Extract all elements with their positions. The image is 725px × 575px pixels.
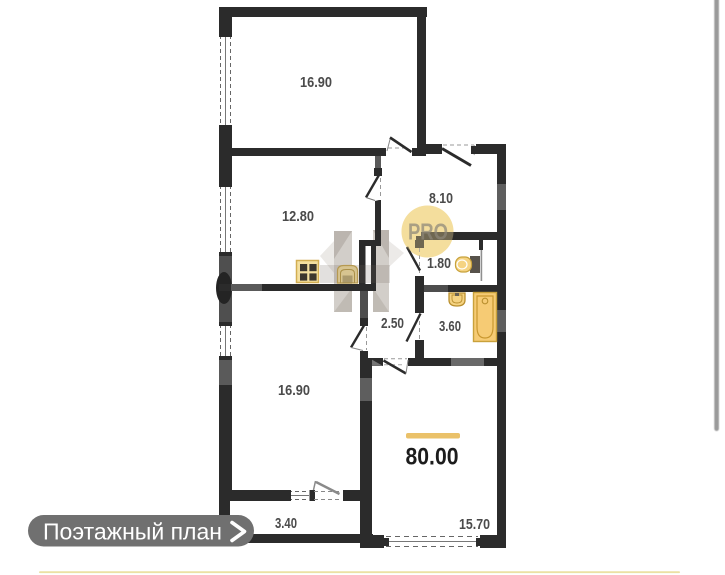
svg-text:3.40: 3.40 [275, 515, 297, 532]
svg-text:15.70: 15.70 [459, 516, 490, 533]
svg-text:Поэтажный план: Поэтажный план [43, 519, 222, 545]
svg-text:16.90: 16.90 [300, 74, 332, 91]
svg-text:1.80: 1.80 [427, 255, 451, 272]
svg-text:80.00: 80.00 [406, 444, 459, 471]
svg-text:2.50: 2.50 [381, 315, 404, 332]
svg-text:16.90: 16.90 [278, 382, 310, 399]
svg-text:PRO: PRO [408, 219, 448, 245]
svg-text:8.10: 8.10 [429, 190, 453, 207]
svg-text:12.80: 12.80 [282, 208, 314, 225]
svg-text:3.60: 3.60 [439, 318, 461, 335]
